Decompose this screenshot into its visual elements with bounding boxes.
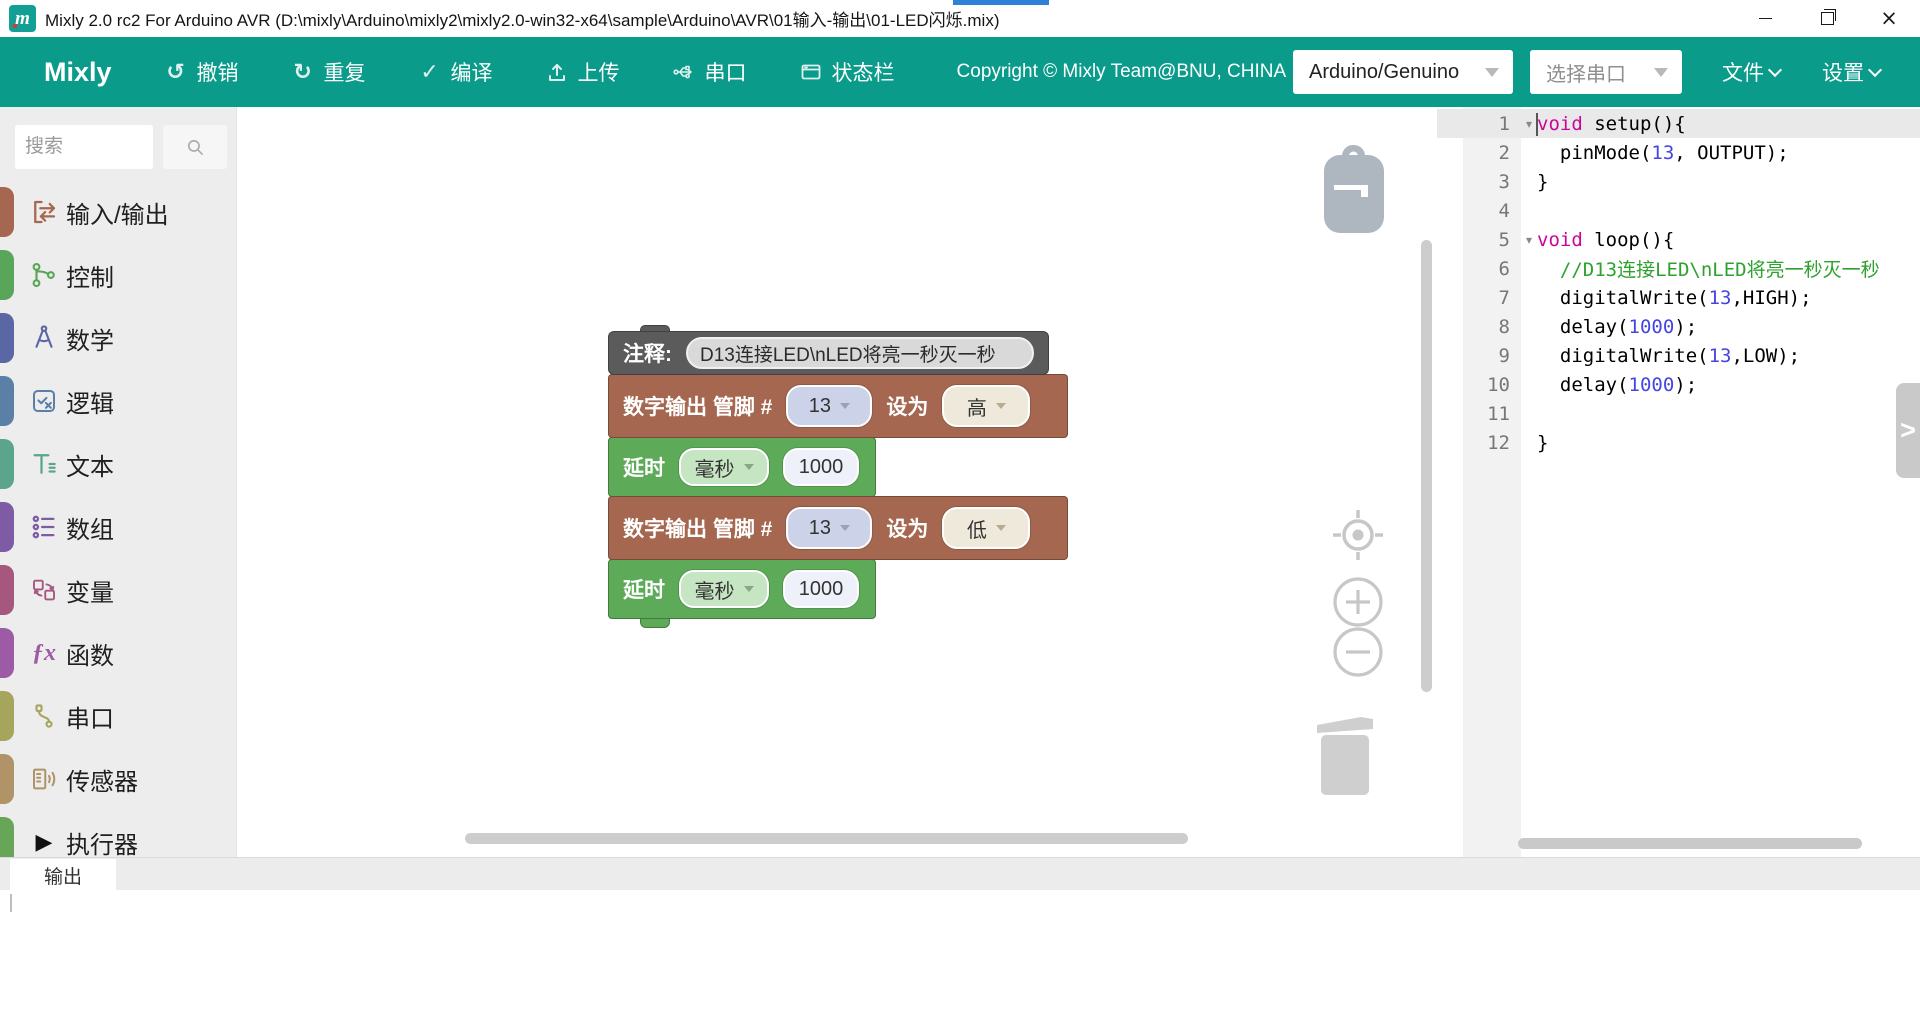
- pin-dropdown[interactable]: 13: [786, 385, 872, 427]
- sensor-icon: [28, 763, 60, 795]
- line-number: 8: [1463, 316, 1521, 338]
- io-icon: [28, 196, 60, 228]
- category-color-strip: [0, 691, 14, 741]
- minimize-button[interactable]: [1734, 0, 1796, 37]
- tab-output[interactable]: 输出: [10, 859, 116, 891]
- comment-block-label: 注释:: [623, 338, 672, 368]
- category-color-strip: [0, 313, 14, 363]
- array-icon: [28, 511, 60, 543]
- copyright-text: Copyright © Mixly Team@BNU, CHINA: [957, 61, 1287, 83]
- comment-text-field[interactable]: D13连接LED\nLED将亮一秒灭一秒: [686, 337, 1034, 369]
- category-color-strip: [0, 187, 14, 237]
- category-label: 数学: [66, 321, 114, 356]
- dropdown-caret-icon: [840, 403, 850, 409]
- dropdown-caret-icon: [744, 464, 754, 470]
- compile-icon: ✓: [418, 60, 442, 84]
- zoom-reset-button[interactable]: [1329, 506, 1387, 564]
- chevron-down-icon: [1868, 63, 1882, 77]
- line-number: 2: [1463, 142, 1521, 164]
- sidebar-item-serial[interactable]: 串口: [0, 691, 236, 741]
- dropdown-caret-icon: [840, 525, 850, 531]
- board-select-value: Arduino/Genuino: [1309, 61, 1459, 84]
- port-select[interactable]: 选择串口: [1530, 50, 1682, 94]
- minimize-icon: [1759, 18, 1772, 20]
- code-line: 6 //D13连接LED\nLED将亮一秒灭一秒: [1437, 254, 1920, 283]
- menu-settings[interactable]: 设置: [1822, 57, 1880, 87]
- trash-icon[interactable]: [1311, 703, 1379, 797]
- close-icon: ×: [1880, 8, 1898, 29]
- sidebar-item-array[interactable]: 数组: [0, 502, 236, 552]
- serial-icon: [28, 700, 60, 732]
- category-label: 函数: [66, 636, 114, 671]
- backpack-icon[interactable]: [1322, 143, 1386, 235]
- delay-value-field[interactable]: 1000: [783, 448, 859, 486]
- sidebar-item-io[interactable]: 输入/输出: [0, 187, 236, 237]
- code-line: 12}: [1437, 428, 1920, 457]
- output-panel-tick: [10, 894, 12, 912]
- category-label: 控制: [66, 258, 114, 293]
- category-list: 输入/输出控制数学逻辑文本数组变量ƒx函数串口传感器▶执行器: [0, 187, 236, 880]
- code-line: 4: [1437, 196, 1920, 225]
- title-bar: m Mixly 2.0 rc2 For Arduino AVR (D:\mixl…: [0, 0, 1920, 37]
- serial-button[interactable]: 串口: [672, 57, 747, 87]
- search-icon: [186, 138, 205, 157]
- level-dropdown[interactable]: 高: [942, 385, 1030, 427]
- code-line: 1▾void setup(){: [1437, 109, 1920, 138]
- code-line: 10 delay(1000);: [1437, 370, 1920, 399]
- code-horizontal-scrollbar[interactable]: [1518, 838, 1862, 849]
- code-line: 8 delay(1000);: [1437, 312, 1920, 341]
- code-panel: 1▾void setup(){2 pinMode(13, OUTPUT);3}4…: [1437, 107, 1920, 857]
- dropdown-caret-icon: [744, 586, 754, 592]
- output-tab-bar: 输出: [0, 857, 1920, 890]
- search-button[interactable]: [163, 125, 227, 169]
- block-bottom-tab: [640, 618, 670, 628]
- code-line: 3}: [1437, 167, 1920, 196]
- line-number: 11: [1463, 403, 1521, 425]
- code-line: 11: [1437, 399, 1920, 428]
- close-button[interactable]: ×: [1858, 0, 1920, 37]
- upload-icon: [545, 60, 569, 84]
- mixly-window: m Mixly 2.0 rc2 For Arduino AVR (D:\mixl…: [0, 0, 1920, 1032]
- fold-marker-icon[interactable]: ▾: [1521, 117, 1537, 131]
- category-color-strip: [0, 439, 14, 489]
- delay-block-2[interactable]: 延时 毫秒 1000: [608, 559, 876, 619]
- sidebar-item-math[interactable]: 数学: [0, 313, 236, 363]
- serial-label: 串口: [705, 57, 747, 87]
- chevron-down-icon: [1768, 63, 1782, 77]
- menu-file[interactable]: 文件: [1722, 57, 1780, 87]
- pin-dropdown[interactable]: 13: [786, 507, 872, 549]
- line-number: 5: [1463, 229, 1521, 251]
- workspace-vertical-scrollbar[interactable]: [1421, 240, 1432, 692]
- code-line: 9 digitalWrite(13,LOW);: [1437, 341, 1920, 370]
- search-input[interactable]: [15, 125, 153, 169]
- code-line: 2 pinMode(13, OUTPUT);: [1437, 138, 1920, 167]
- workspace-horizontal-scrollbar[interactable]: [465, 833, 1188, 844]
- function-icon: ƒx: [28, 637, 60, 669]
- compile-button[interactable]: ✓编译: [418, 57, 493, 87]
- delay-block-1[interactable]: 延时 毫秒 1000: [608, 437, 876, 497]
- line-number: 10: [1463, 374, 1521, 396]
- line-number: 1: [1463, 113, 1521, 135]
- level-dropdown[interactable]: 低: [942, 507, 1030, 549]
- sidebar-item-variable[interactable]: 变量: [0, 565, 236, 615]
- code-lines: 1▾void setup(){2 pinMode(13, OUTPUT);3}4…: [1437, 109, 1920, 457]
- app-logo-icon: m: [9, 5, 36, 32]
- sidebar-item-text[interactable]: 文本: [0, 439, 236, 489]
- statusbar-icon: [799, 60, 823, 84]
- upload-button[interactable]: 上传: [545, 57, 620, 87]
- sidebar-item-logic[interactable]: 逻辑: [0, 376, 236, 426]
- upload-label: 上传: [578, 57, 620, 87]
- board-select[interactable]: Arduino/Genuino: [1293, 50, 1513, 94]
- digital-write-block-2[interactable]: 数字输出 管脚 # 13 设为 低: [608, 496, 1068, 560]
- category-color-strip: [0, 250, 14, 300]
- digital-write-block-1[interactable]: 数字输出 管脚 # 13 设为 高: [608, 374, 1068, 438]
- unit-dropdown[interactable]: 毫秒: [679, 448, 769, 486]
- window-title: Mixly 2.0 rc2 For Arduino AVR (D:\mixly\…: [45, 6, 999, 31]
- line-number: 9: [1463, 345, 1521, 367]
- toolbar-buttons: ↺撤销↻重复✓编译上传串口状态栏: [164, 57, 895, 87]
- category-label: 文本: [66, 447, 114, 482]
- text-cursor: [1536, 113, 1538, 136]
- statusbar-label: 状态栏: [832, 57, 895, 87]
- logic-icon: [28, 385, 60, 417]
- code-line: 7 digitalWrite(13,HIGH);: [1437, 283, 1920, 312]
- dropdown-caret-icon: [996, 525, 1006, 531]
- blockly-workspace[interactable]: 注释: D13连接LED\nLED将亮一秒灭一秒 数字输出 管脚 # 13 设为…: [237, 107, 1437, 857]
- compile-label: 编译: [451, 57, 493, 87]
- line-number: 12: [1463, 432, 1521, 454]
- actuator-icon: ▶: [28, 826, 60, 858]
- redo-icon: ↻: [291, 60, 315, 84]
- unit-dropdown[interactable]: 毫秒: [679, 570, 769, 608]
- category-label: 执行器: [66, 825, 138, 860]
- undo-label: 撤销: [197, 57, 239, 87]
- redo-label: 重复: [324, 57, 366, 87]
- zoom-out-button[interactable]: [1332, 626, 1384, 678]
- line-number: 6: [1463, 258, 1521, 280]
- fold-marker-icon[interactable]: ▾: [1521, 233, 1537, 247]
- dropdown-caret-icon: [996, 403, 1006, 409]
- code-line: 5▾void loop(){: [1437, 225, 1920, 254]
- line-number: 3: [1463, 171, 1521, 193]
- top-accent-bar: [953, 0, 1049, 5]
- panel-collapse-handle[interactable]: >: [1896, 383, 1920, 478]
- line-number: 7: [1463, 287, 1521, 309]
- category-color-strip: [0, 754, 14, 804]
- category-color-strip: [0, 502, 14, 552]
- serial-icon: [672, 60, 696, 84]
- category-label: 输入/输出: [66, 195, 169, 230]
- category-color-strip: [0, 376, 14, 426]
- sidebar-item-function[interactable]: ƒx函数: [0, 628, 236, 678]
- block-category-sidebar: 输入/输出控制数学逻辑文本数组变量ƒx函数串口传感器▶执行器: [0, 107, 237, 857]
- delay-value-field[interactable]: 1000: [783, 570, 859, 608]
- category-color-strip: [0, 565, 14, 615]
- brand-label: Mixly: [44, 57, 112, 88]
- restore-button[interactable]: [1796, 0, 1858, 37]
- category-label: 传感器: [66, 762, 138, 797]
- category-label: 串口: [66, 699, 114, 734]
- line-number: 4: [1463, 200, 1521, 222]
- category-label: 逻辑: [66, 384, 114, 419]
- chevron-down-icon: [1485, 68, 1499, 77]
- chevron-right-icon: >: [1900, 415, 1916, 446]
- sidebar-item-sensor[interactable]: 传感器: [0, 754, 236, 804]
- undo-button[interactable]: ↺撤销: [164, 57, 239, 87]
- statusbar-button[interactable]: 状态栏: [799, 57, 895, 87]
- main-toolbar: Mixly ↺撤销↻重复✓编译上传串口状态栏 Copyright © Mixly…: [0, 37, 1920, 107]
- undo-icon: ↺: [164, 60, 188, 84]
- math-icon: [28, 322, 60, 354]
- zoom-in-button[interactable]: [1332, 576, 1384, 628]
- text-icon: [28, 448, 60, 480]
- variable-icon: [28, 574, 60, 606]
- comment-block[interactable]: 注释: D13连接LED\nLED将亮一秒灭一秒: [608, 331, 1049, 375]
- sidebar-item-control[interactable]: 控制: [0, 250, 236, 300]
- restore-icon: [1821, 12, 1834, 25]
- port-select-value: 选择串口: [1546, 58, 1626, 87]
- control-icon: [28, 259, 60, 291]
- chevron-down-icon: [1654, 68, 1668, 77]
- output-panel: [0, 890, 1920, 1032]
- category-label: 变量: [66, 573, 114, 608]
- redo-button[interactable]: ↻重复: [291, 57, 366, 87]
- category-color-strip: [0, 628, 14, 678]
- category-label: 数组: [66, 510, 114, 545]
